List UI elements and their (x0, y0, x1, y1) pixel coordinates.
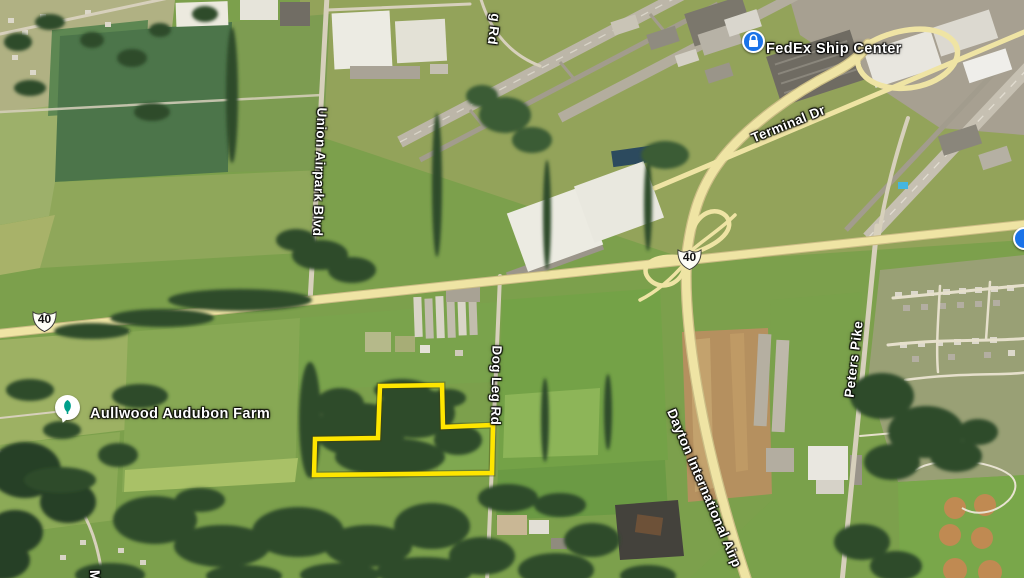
fedex-ship-center-label[interactable]: FedEx Ship Center (766, 41, 902, 57)
aullwood-poi-icon[interactable] (55, 395, 80, 420)
us-route-40-shield-west: 40 (31, 309, 58, 334)
dog-leg-rd-label: Dog Leg Rd (488, 345, 504, 425)
route-number: 40 (31, 312, 58, 326)
package-icon (744, 32, 763, 51)
us-route-40-shield-east: 40 (676, 247, 703, 272)
satellite-imagery (0, 0, 1024, 578)
bottom-left-partial-road-label: M (87, 570, 103, 578)
nature-icon (55, 395, 80, 420)
fedex-poi-icon[interactable] (742, 30, 765, 53)
route-number: 40 (676, 250, 703, 264)
satellite-map[interactable]: FedEx Ship Center Aullwood Audubon Farm … (0, 0, 1024, 578)
aullwood-audubon-farm-label[interactable]: Aullwood Audubon Farm (90, 406, 270, 422)
